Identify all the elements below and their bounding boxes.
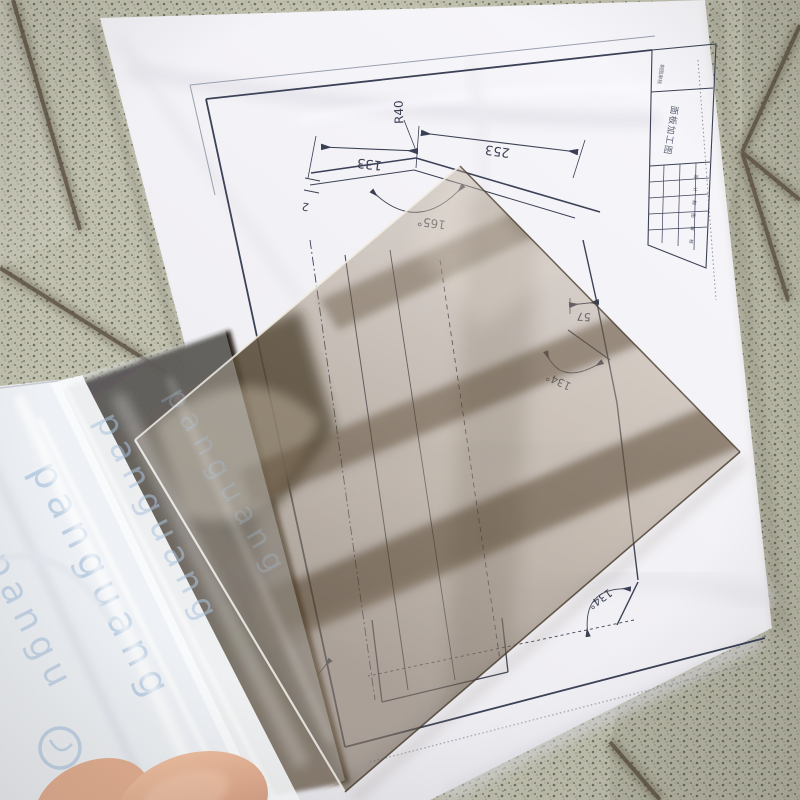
photo-scene: 制图审核 面板加工图 设 计 制 图 审 核 133 253 R40 2 165… xyxy=(0,0,800,800)
vignette xyxy=(0,0,800,800)
photo-canvas: 制图审核 面板加工图 设 计 制 图 审 核 133 253 R40 2 165… xyxy=(0,0,800,800)
